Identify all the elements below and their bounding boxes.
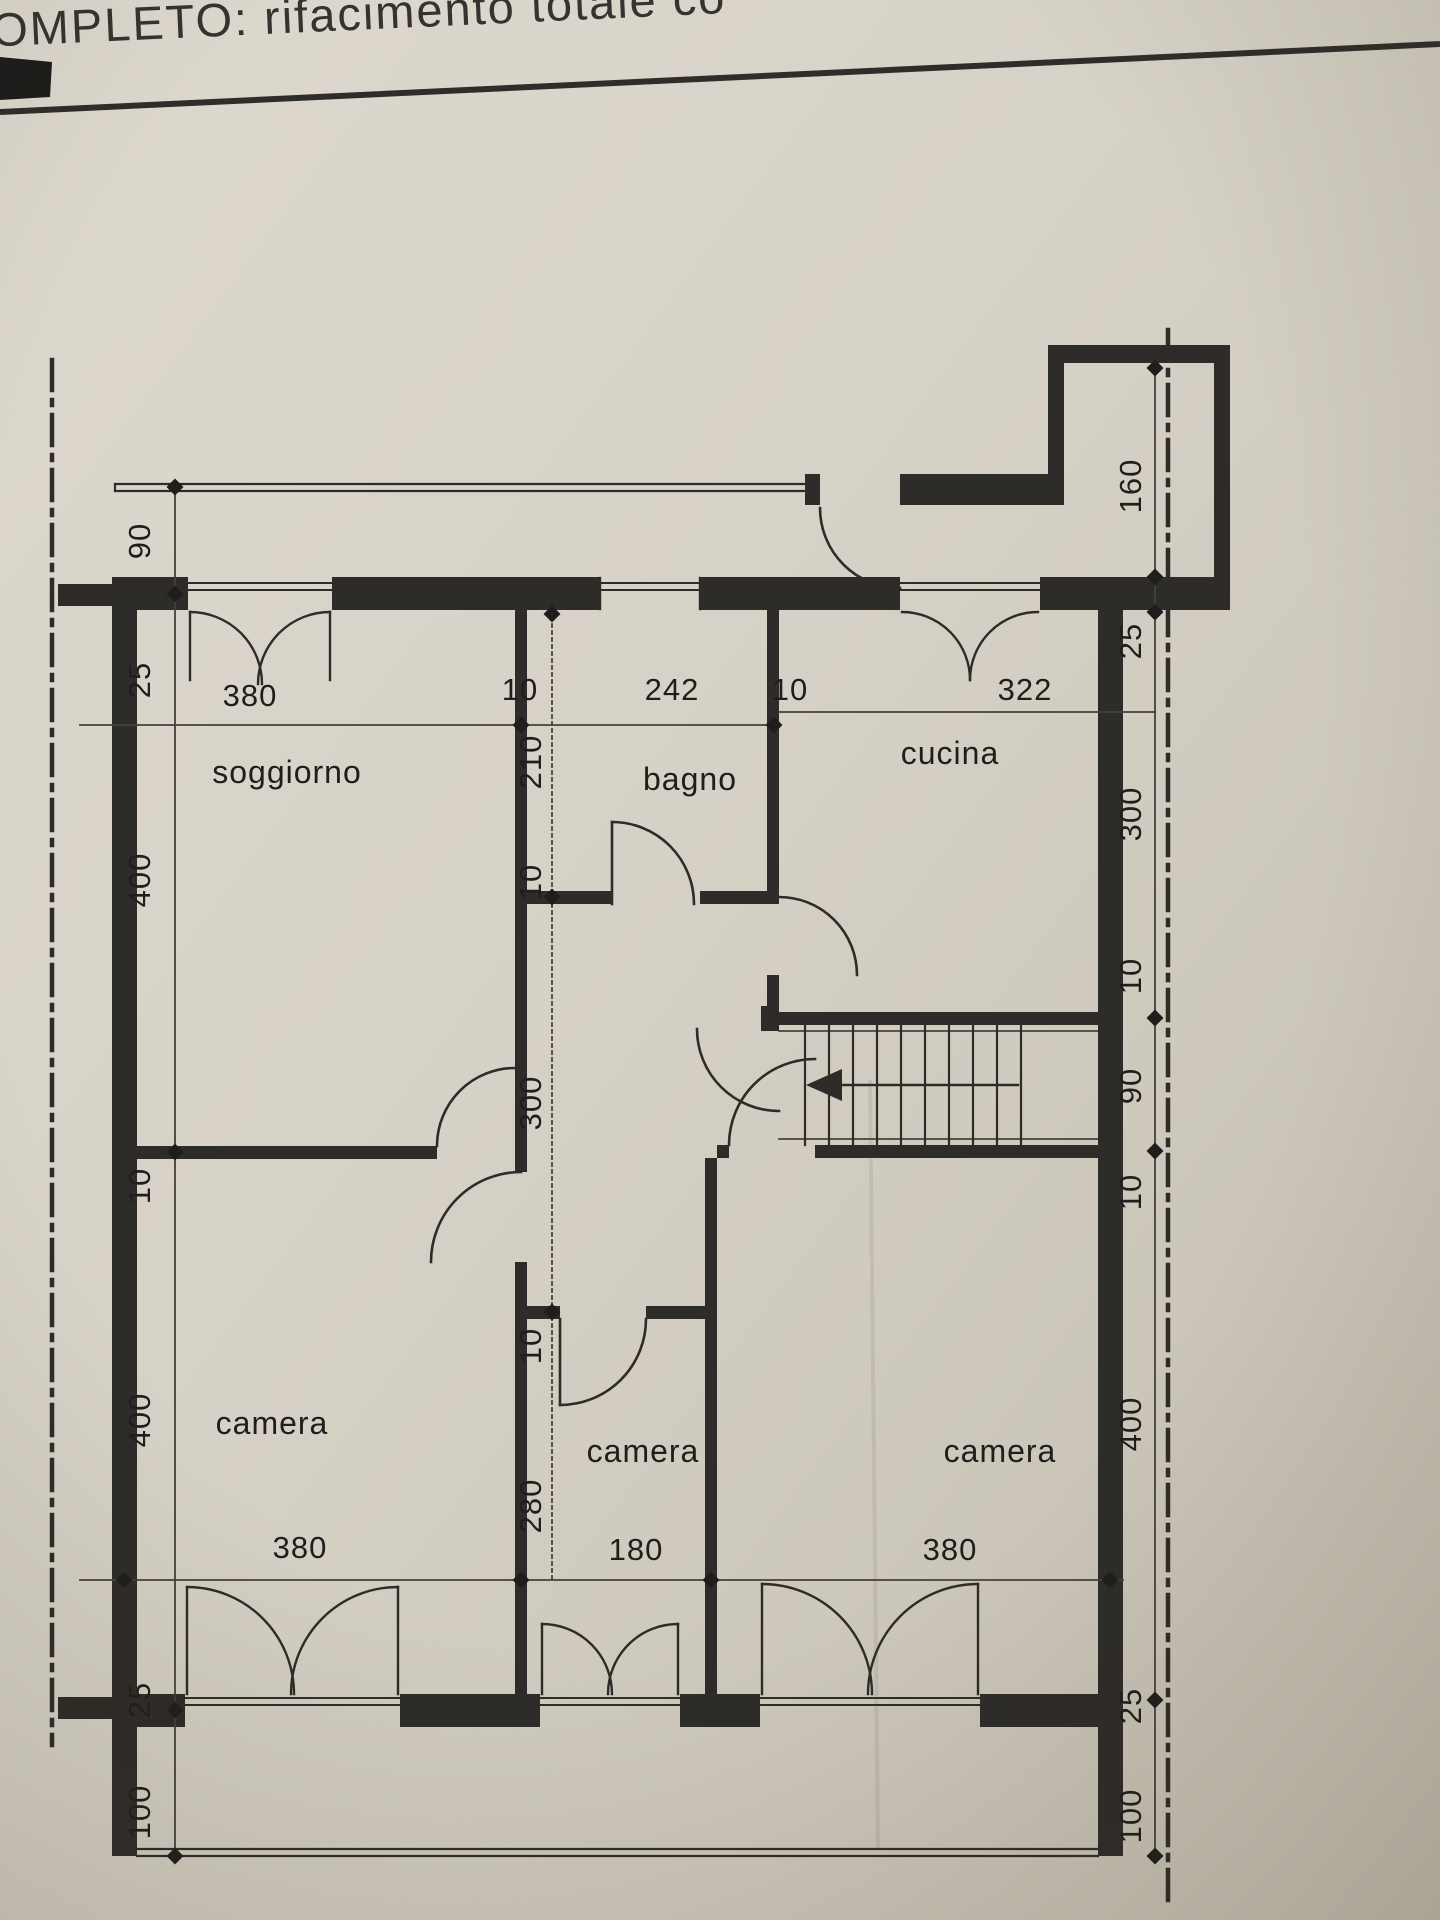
dim-label: 160	[1113, 459, 1148, 514]
dim-label: 400	[1113, 1397, 1148, 1452]
room-label-cucina: cucina	[901, 735, 1000, 771]
dim-label: 10	[513, 864, 548, 900]
dim-label: 210	[513, 735, 548, 790]
wall-segment	[1098, 577, 1123, 1727]
wall-segment	[1214, 345, 1230, 610]
wall-segment	[761, 1006, 779, 1031]
wall-segment	[705, 1158, 717, 1694]
dim-label: 10	[122, 1168, 157, 1204]
wall-segment	[900, 474, 1056, 505]
dim-label: 90	[1113, 1068, 1148, 1104]
dim-label: 380	[273, 1530, 328, 1565]
room-label-camera-right: camera	[944, 1433, 1057, 1469]
wall-segment	[515, 1262, 527, 1694]
wall-segment	[815, 1145, 1098, 1158]
dim-label: 25	[1113, 1688, 1148, 1724]
wall-segment	[400, 1694, 540, 1727]
dim-label: 280	[513, 1479, 548, 1534]
wall-segment	[1040, 577, 1098, 610]
page-edge-mark	[0, 57, 52, 100]
room-label-camera-left: camera	[216, 1405, 329, 1441]
dim-label: 400	[122, 853, 157, 908]
dim-label: 300	[1113, 787, 1148, 842]
wall-segment	[112, 1146, 437, 1159]
dim-label: 10	[1113, 958, 1148, 994]
wall-segment	[680, 1694, 760, 1727]
scanned-floor-plan-page: OMPLETO: rifacimento totale co	[0, 0, 1440, 1920]
wall-segment	[980, 1694, 1123, 1727]
wall-segment	[1048, 345, 1230, 363]
room-label-soggiorno: soggiorno	[212, 754, 362, 790]
wall-segment	[58, 1697, 112, 1719]
dim-label: 380	[923, 1532, 978, 1567]
room-label-camera-middle: camera	[587, 1433, 700, 1469]
dim-label: 10	[772, 672, 808, 707]
wall-segment	[1098, 577, 1230, 610]
dim-label: 25	[122, 662, 157, 698]
dim-label: 400	[122, 1393, 157, 1448]
dim-label: 10	[513, 1328, 548, 1364]
dim-label: 100	[122, 1785, 157, 1840]
wall-segment	[700, 577, 779, 610]
dim-label: 90	[122, 523, 157, 559]
wall-segment	[779, 1012, 1098, 1025]
wall-segment	[646, 1306, 707, 1319]
dim-label: 100	[1113, 1789, 1148, 1844]
paper-background	[0, 0, 1440, 1920]
wall-segment	[58, 584, 112, 606]
wall-segment	[1048, 363, 1064, 505]
dim-label: 380	[223, 678, 278, 713]
dim-label: 300	[513, 1076, 548, 1131]
room-label-bagno: bagno	[643, 761, 737, 797]
dim-label: 242	[645, 672, 700, 707]
dim-label: 25	[122, 1682, 157, 1718]
dim-label: 25	[1113, 623, 1148, 659]
dim-label: 180	[609, 1532, 664, 1567]
wall-segment	[332, 577, 600, 610]
wall-segment	[779, 577, 900, 610]
dim-label: 10	[502, 672, 538, 707]
dim-label: 322	[998, 672, 1053, 707]
wall-segment	[805, 474, 820, 505]
dim-label: 10	[1113, 1174, 1148, 1210]
wall-segment	[717, 1145, 729, 1158]
wall-segment	[767, 610, 779, 895]
